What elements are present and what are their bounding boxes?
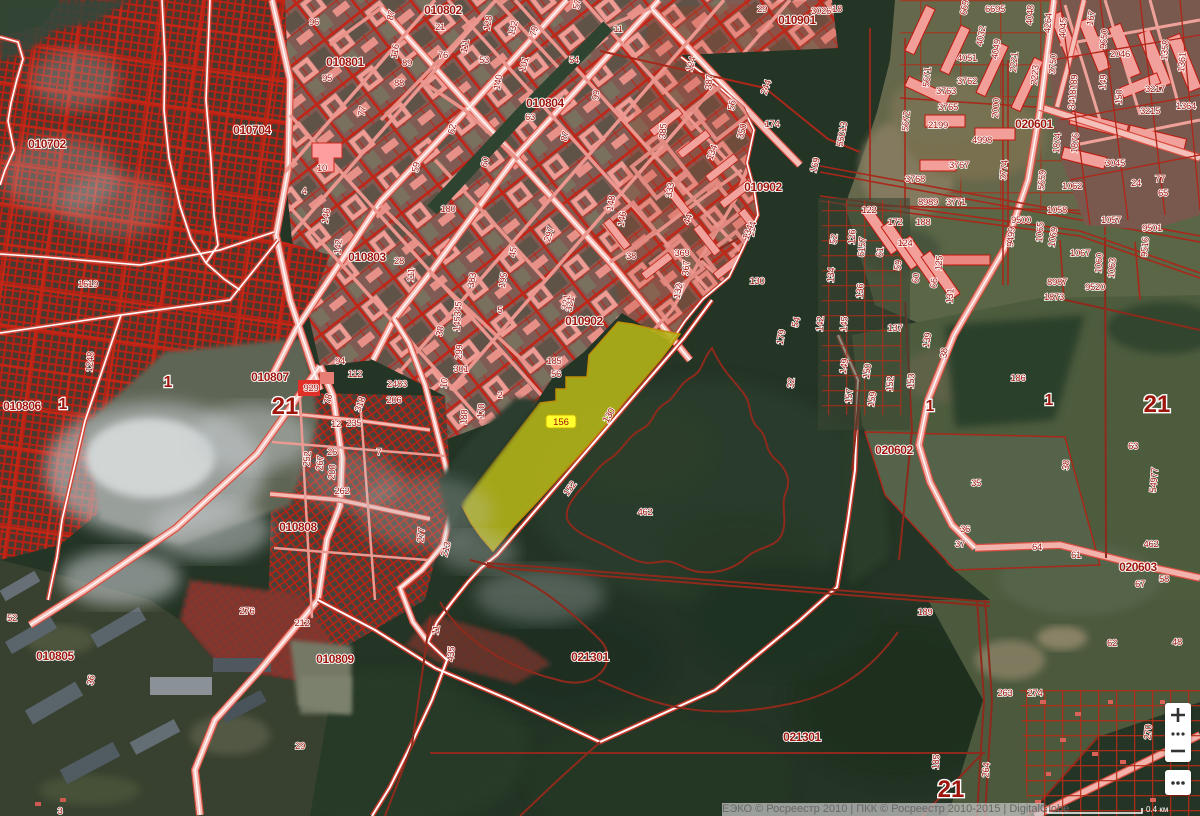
svg-text:65: 65 [1158,188,1168,199]
svg-text:142: 142 [814,316,826,332]
svg-text:387: 387 [703,74,715,90]
svg-text:010805: 010805 [36,649,74,663]
svg-text:38: 38 [626,251,636,262]
svg-text:299: 299 [453,344,465,360]
svg-text:1: 1 [59,396,68,413]
svg-text:462: 462 [1144,539,1159,550]
svg-text:52: 52 [7,613,17,624]
svg-text:262: 262 [335,486,350,497]
svg-text:9499: 9499 [1005,227,1018,248]
svg-text:10: 10 [317,163,327,174]
svg-text:5659: 5659 [1036,170,1049,191]
svg-text:021301: 021301 [571,650,609,664]
svg-text:56: 56 [551,369,561,380]
svg-text:4264: 4264 [1042,13,1055,34]
svg-text:57: 57 [571,0,584,10]
svg-text:186: 186 [1011,373,1026,384]
svg-text:3765: 3765 [938,102,958,113]
svg-text:137: 137 [888,323,903,334]
svg-text:32: 32 [786,378,798,389]
svg-text:6157: 6157 [856,237,869,258]
svg-text:38: 38 [1061,460,1073,471]
svg-text:010902: 010902 [744,180,782,194]
svg-text:29: 29 [757,4,767,15]
svg-text:1058: 1058 [1047,205,1067,216]
svg-text:21: 21 [272,393,299,420]
svg-text:4048: 4048 [1024,5,1037,26]
svg-text:29: 29 [295,741,305,752]
svg-text:76: 76 [438,50,448,61]
svg-text:111: 111 [459,39,472,54]
svg-text:301: 301 [454,364,469,375]
svg-text:1060: 1060 [1093,253,1106,274]
svg-text:010803: 010803 [348,250,386,264]
svg-text:45: 45 [507,246,520,258]
svg-text:2046: 2046 [1110,49,1130,60]
svg-text:274: 274 [1028,688,1043,699]
svg-text:2223: 2223 [1029,65,1042,86]
svg-text:2199: 2199 [928,120,948,131]
svg-text:111: 111 [405,268,417,282]
svg-text:3750: 3750 [1047,54,1060,75]
svg-text:9520: 9520 [1085,282,1105,293]
svg-text:2483: 2483 [387,379,407,390]
svg-text:369: 369 [675,248,690,259]
svg-text:145: 145 [451,316,463,332]
svg-text:54977: 54977 [1148,467,1161,493]
svg-text:56: 56 [726,99,739,111]
svg-text:95: 95 [322,73,332,84]
svg-text:134: 134 [825,267,837,283]
svg-text:4: 4 [302,186,307,197]
svg-text:9650: 9650 [1098,29,1111,50]
svg-text:1619: 1619 [78,279,98,290]
svg-text:3767: 3767 [949,160,969,171]
svg-text:010801: 010801 [326,55,364,69]
svg-text:58: 58 [1159,574,1169,585]
svg-text:26: 26 [327,447,337,458]
svg-text:020602: 020602 [875,443,913,457]
svg-text:3771: 3771 [946,197,966,208]
svg-text:385: 385 [657,123,669,139]
svg-text:188: 188 [458,409,470,425]
svg-text:11: 11 [613,24,622,35]
svg-text:1361: 1361 [1176,52,1189,73]
svg-text:24: 24 [1131,178,1141,189]
svg-text:4045: 4045 [1057,18,1070,39]
svg-text:6695: 6695 [985,4,1005,15]
svg-text:1: 1 [926,398,935,415]
svg-text:61: 61 [875,247,887,258]
svg-text:1065: 1065 [1034,222,1047,243]
svg-text:010807: 010807 [251,370,289,384]
svg-text:35: 35 [971,478,981,489]
svg-text:130: 130 [750,276,765,287]
svg-text:9500: 9500 [1011,215,1031,226]
svg-text:367: 367 [680,260,692,276]
svg-text:4051: 4051 [957,53,977,64]
svg-text:94: 94 [335,356,345,367]
svg-text:010804: 010804 [526,96,564,110]
svg-text:435: 435 [445,646,457,662]
svg-text:38: 38 [939,348,951,359]
svg-text:136: 136 [854,283,866,299]
svg-text:178: 178 [475,403,487,419]
svg-text:63: 63 [525,112,535,123]
svg-text:52: 52 [829,234,841,245]
svg-text:1876: 1876 [1069,133,1082,154]
svg-text:8989: 8989 [918,197,938,208]
svg-text:174: 174 [765,119,780,130]
svg-text:124: 124 [898,238,913,249]
svg-text:1057: 1057 [1101,215,1121,226]
svg-text:156: 156 [553,417,569,428]
svg-text:1067: 1067 [1070,248,1090,259]
svg-text:200: 200 [326,464,338,480]
svg-text:020603: 020603 [1119,560,1157,574]
svg-text:9501: 9501 [1142,223,1162,234]
svg-text:62: 62 [1107,638,1117,649]
svg-text:5671: 5671 [921,67,934,88]
svg-text:61: 61 [1071,550,1081,561]
svg-text:264: 264 [980,762,992,778]
svg-text:188: 188 [916,217,931,228]
svg-text:5672: 5672 [900,111,913,132]
svg-text:180: 180 [441,204,456,215]
svg-text:59: 59 [410,161,423,173]
svg-text:60: 60 [911,273,923,284]
svg-text:59: 59 [893,260,905,271]
svg-text:1248: 1248 [84,352,97,373]
svg-text:185: 185 [930,754,942,770]
svg-text:3: 3 [58,806,63,816]
svg-text:21: 21 [938,776,965,803]
svg-text:3215: 3215 [1140,106,1160,117]
svg-text:010806: 010806 [3,399,41,413]
svg-text:150: 150 [1113,89,1125,105]
svg-text:77: 77 [356,105,369,117]
svg-text:21: 21 [1144,391,1171,418]
svg-text:1358: 1358 [1159,40,1172,61]
svg-text:3768: 3768 [905,174,925,185]
svg-text:28: 28 [394,256,404,267]
svg-text:1364: 1364 [1176,101,1196,112]
svg-text:1062: 1062 [1062,181,1082,192]
svg-text:929: 929 [304,383,319,394]
svg-text:2: 2 [498,390,503,401]
svg-text:96: 96 [309,17,319,28]
svg-text:021301: 021301 [783,730,821,744]
svg-text:37: 37 [955,539,965,550]
svg-text:62: 62 [446,123,459,135]
svg-text:010902: 010902 [565,314,603,328]
svg-text:131: 131 [944,288,956,304]
svg-text:18: 18 [832,4,842,15]
svg-text:112: 112 [348,369,362,380]
svg-text:3762: 3762 [957,76,977,87]
svg-text:67: 67 [1135,579,1145,590]
svg-text:7: 7 [377,447,382,458]
svg-text:010704: 010704 [233,123,271,137]
svg-text:1: 1 [164,374,173,391]
svg-text:66: 66 [929,278,941,289]
svg-text:277: 277 [415,527,427,543]
svg-text:185: 185 [547,356,562,367]
svg-text:63: 63 [1128,441,1138,452]
svg-text:149: 149 [1097,74,1109,90]
svg-text:21: 21 [435,22,445,33]
svg-text:11: 11 [430,625,442,636]
svg-text:36: 36 [85,674,98,686]
svg-text:99: 99 [591,90,603,101]
svg-text:276: 276 [240,606,255,617]
svg-text:5: 5 [498,305,503,316]
svg-text:1873: 1873 [1044,292,1064,303]
svg-text:9516: 9516 [1139,237,1152,258]
svg-text:3217: 3217 [1145,84,1165,95]
svg-text:3045: 3045 [1105,158,1125,169]
svg-text:152: 152 [884,376,896,392]
svg-text:2000: 2000 [990,98,1003,119]
svg-text:38: 38 [434,325,447,337]
svg-text:157: 157 [843,388,855,404]
svg-text:172: 172 [888,217,903,228]
svg-text:270: 270 [1142,724,1154,740]
svg-text:36: 36 [960,524,970,535]
svg-text:020601: 020601 [1015,117,1053,131]
svg-text:2221: 2221 [1008,52,1021,73]
svg-text:3763: 3763 [936,86,956,97]
svg-text:8987: 8987 [1047,277,1067,288]
svg-text:3026: 3026 [811,6,831,17]
svg-text:89: 89 [402,58,412,69]
svg-text:263: 263 [998,688,1013,699]
svg-text:54: 54 [569,55,579,66]
svg-text:53: 53 [479,55,489,66]
svg-text:010702: 010702 [28,137,66,151]
svg-text:4998: 4998 [972,135,992,146]
svg-text:010808: 010808 [279,520,317,534]
svg-text:010802: 010802 [424,3,462,17]
svg-text:206: 206 [387,395,402,406]
svg-text:1063: 1063 [1106,258,1119,279]
svg-text:3774: 3774 [998,160,1011,181]
svg-text:153: 153 [905,373,917,389]
svg-text:88: 88 [394,78,404,89]
svg-text:462: 462 [638,507,653,518]
svg-text:77: 77 [1155,174,1165,185]
svg-text:64: 64 [1032,542,1042,553]
svg-text:010809: 010809 [316,652,354,666]
svg-text:12: 12 [331,419,341,430]
svg-text:142: 142 [332,239,344,255]
svg-text:48: 48 [1172,637,1182,648]
svg-text:122: 122 [862,205,877,216]
svg-text:1874: 1874 [1051,133,1064,154]
svg-text:125: 125 [933,255,945,271]
svg-text:212: 212 [295,618,310,629]
svg-text:345: 345 [452,301,464,317]
svg-text:10: 10 [438,377,451,389]
svg-text:189: 189 [918,607,933,618]
svg-text:235: 235 [347,418,362,429]
svg-text:252: 252 [301,451,313,467]
svg-text:267: 267 [314,455,326,471]
svg-text:145: 145 [838,316,850,332]
svg-text:1: 1 [1045,392,1054,409]
